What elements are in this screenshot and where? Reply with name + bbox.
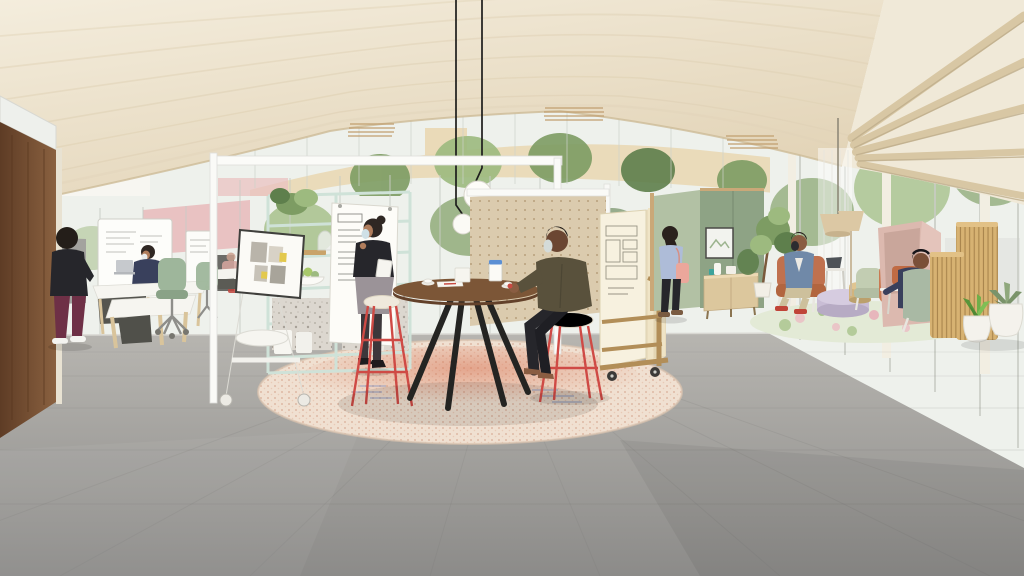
render-canvas [0,0,1024,576]
easel-seat [236,330,288,346]
standing-tablet [489,260,502,281]
mood-board [236,230,304,298]
office-rendering [0,0,1024,576]
laptop [114,260,135,275]
framed-artwork [706,228,733,258]
